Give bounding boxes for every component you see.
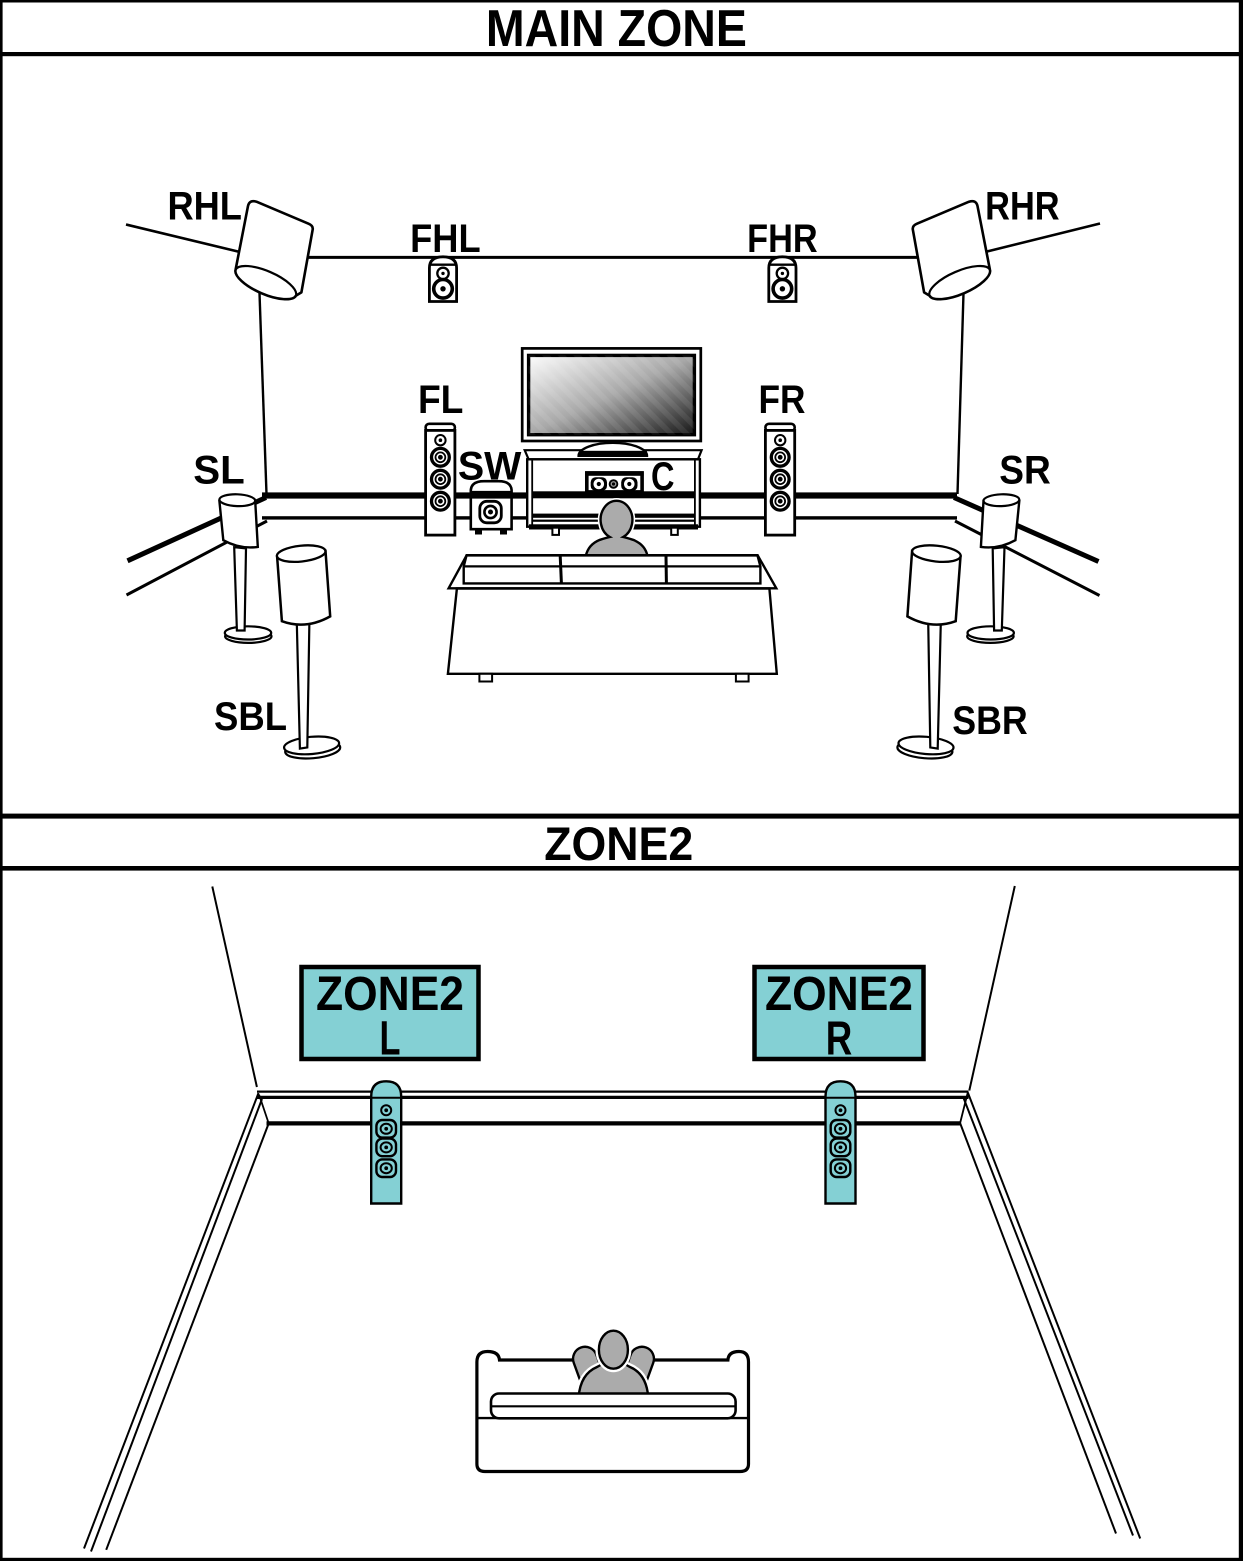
svg-text:SW: SW	[458, 445, 522, 489]
svg-text:RHR: RHR	[985, 185, 1060, 229]
svg-text:FHL: FHL	[410, 217, 481, 261]
svg-text:SR: SR	[999, 449, 1051, 493]
svg-text:SL: SL	[193, 449, 245, 493]
svg-text:FR: FR	[759, 378, 806, 422]
svg-text:RHL: RHL	[167, 185, 242, 229]
svg-text:R: R	[826, 1012, 853, 1066]
svg-text:FL: FL	[418, 378, 464, 422]
svg-text:C: C	[651, 455, 675, 499]
svg-text:ZONE2: ZONE2	[544, 817, 693, 870]
svg-text:SBR: SBR	[952, 699, 1028, 743]
svg-text:SBL: SBL	[214, 695, 287, 739]
svg-text:FHR: FHR	[747, 217, 818, 261]
svg-text:MAIN ZONE: MAIN ZONE	[486, 0, 747, 57]
svg-text:L: L	[380, 1012, 401, 1066]
